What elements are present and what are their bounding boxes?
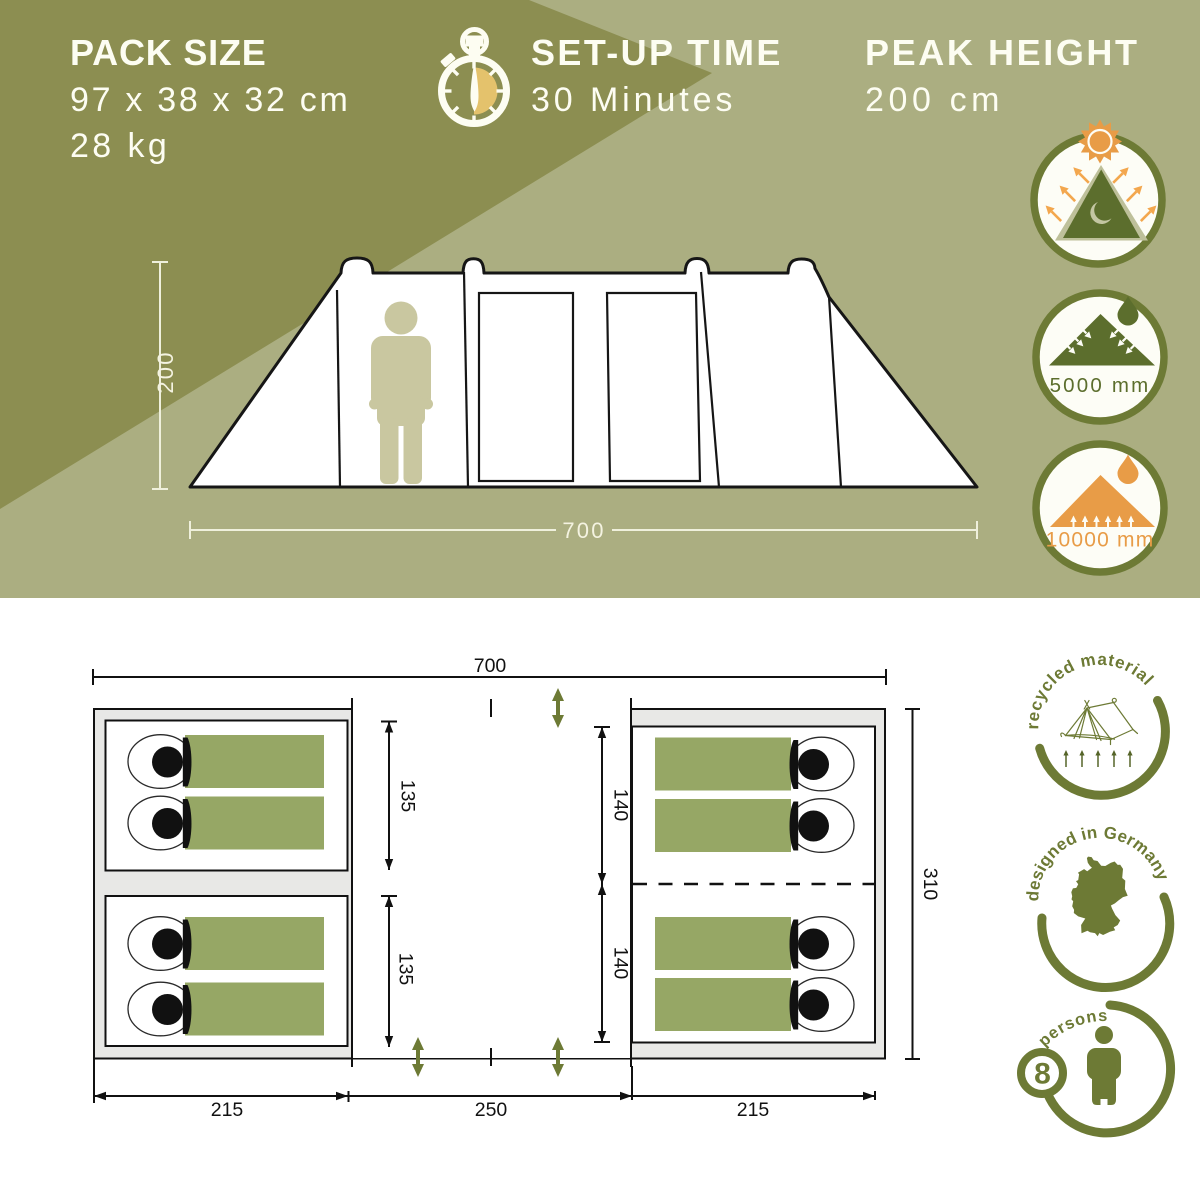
svg-text:8: 8 <box>1034 1058 1051 1091</box>
svg-text:250: 250 <box>475 1099 508 1121</box>
svg-text:200: 200 <box>153 350 178 393</box>
svg-text:140: 140 <box>610 947 632 980</box>
svg-text:700: 700 <box>562 518 605 543</box>
svg-text:28 kg: 28 kg <box>70 127 170 165</box>
svg-text:215: 215 <box>211 1099 244 1121</box>
svg-text:30 Minutes: 30 Minutes <box>531 81 736 119</box>
svg-text:215: 215 <box>737 1099 770 1121</box>
svg-text:135: 135 <box>397 780 419 813</box>
svg-text:10000 mm: 10000 mm <box>1046 529 1155 552</box>
svg-text:5000 mm: 5000 mm <box>1050 374 1151 397</box>
svg-text:97 x 38 x 32 cm: 97 x 38 x 32 cm <box>70 81 351 119</box>
svg-text:SET-UP TIME: SET-UP TIME <box>531 32 783 73</box>
svg-text:persons: persons <box>1035 1007 1109 1051</box>
svg-text:700: 700 <box>474 655 507 677</box>
svg-text:PACK SIZE: PACK SIZE <box>70 32 267 73</box>
svg-text:PEAK HEIGHT: PEAK HEIGHT <box>865 32 1140 73</box>
svg-text:310: 310 <box>919 868 941 901</box>
svg-text:140: 140 <box>610 789 632 822</box>
svg-text:200 cm: 200 cm <box>865 81 1004 119</box>
svg-text:135: 135 <box>395 953 417 986</box>
